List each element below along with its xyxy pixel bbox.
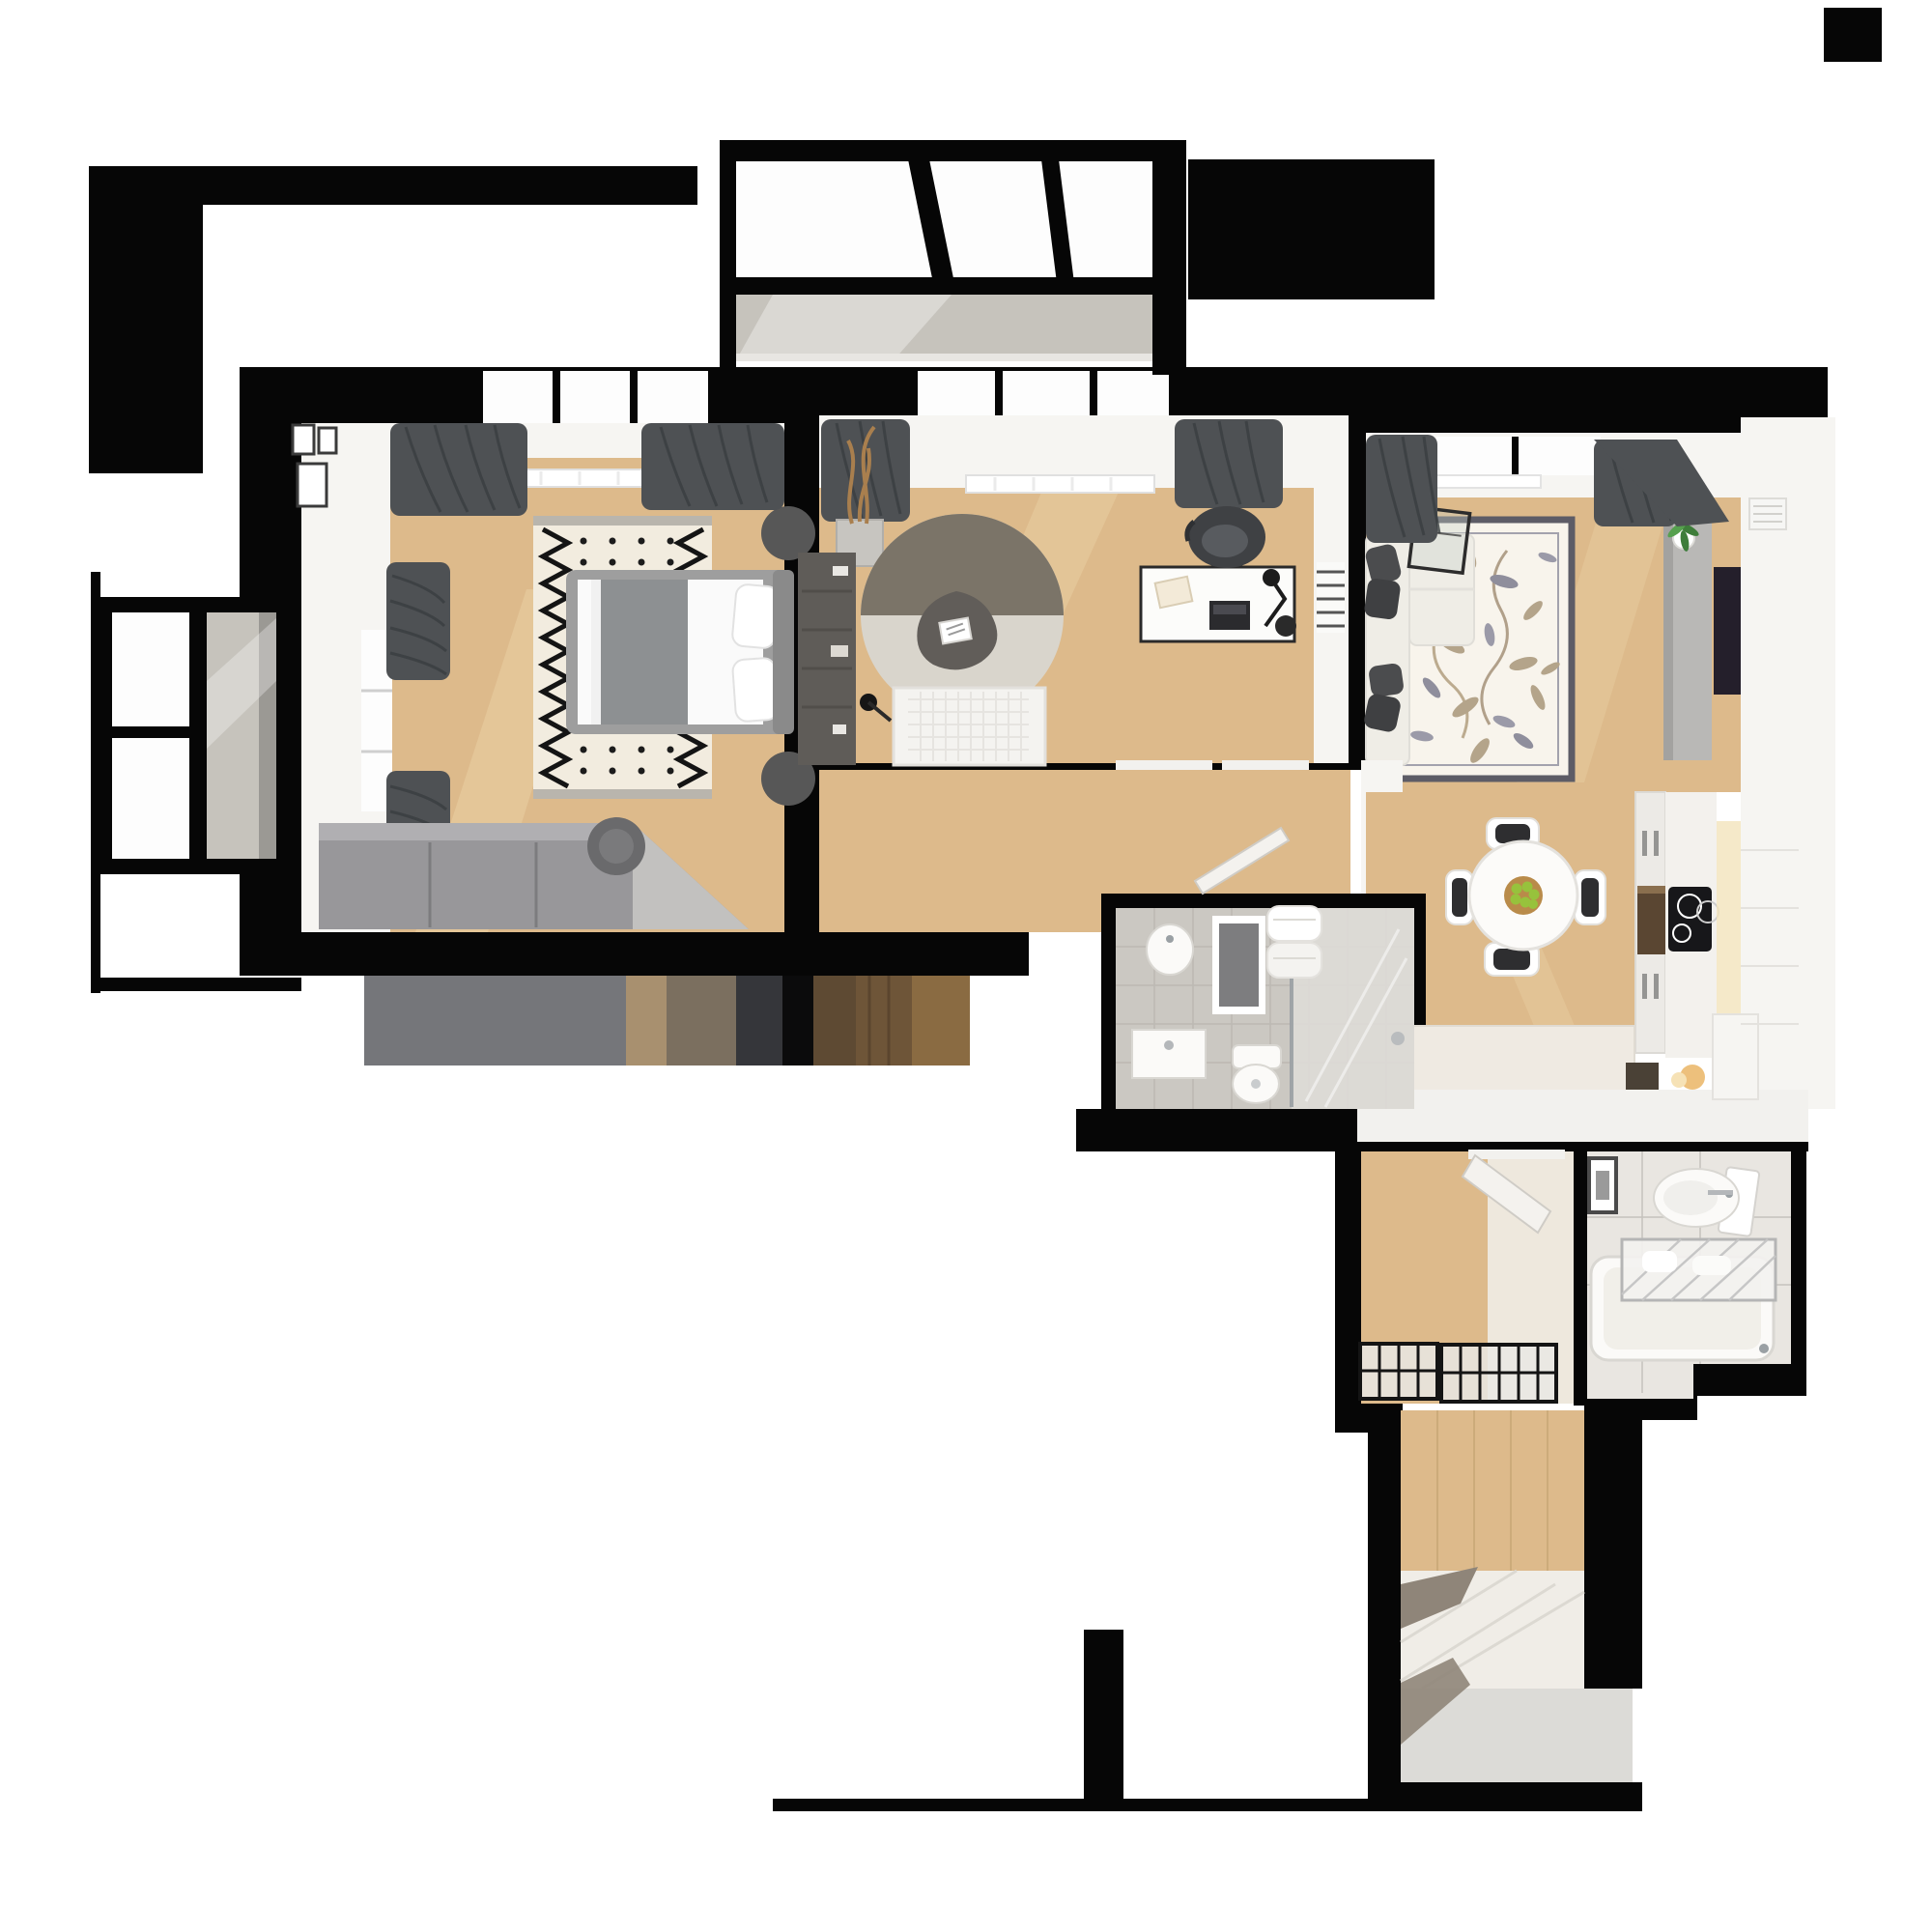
shoe-rack-1 — [1360, 1344, 1437, 1399]
living-wall-shelf — [1749, 498, 1786, 529]
balcony-left-mullion-h — [112, 726, 189, 738]
dining-chair-right — [1575, 870, 1605, 924]
notebook — [1155, 577, 1193, 609]
balcony-left — [97, 597, 290, 874]
study-window-top — [918, 371, 1169, 417]
kitchen-tall-cabinets — [1635, 792, 1665, 1053]
wall-bedroom-bottom — [240, 932, 1029, 976]
wall-bath2-bottom-right — [1693, 1364, 1806, 1396]
balcony-left-mullion-v — [189, 612, 207, 859]
entry-wood-panel — [1401, 1410, 1584, 1571]
wall-entry-bottom — [1368, 1782, 1642, 1811]
bath1-mat — [1212, 916, 1265, 1014]
exterior-block-top-right — [1188, 159, 1435, 299]
wall-lone-bar — [1084, 1630, 1123, 1811]
room-bedroom — [293, 423, 815, 932]
corridor-door-gap-1 — [1116, 760, 1212, 770]
room-bathroom-shower — [1116, 906, 1414, 1109]
balcony-top-frame-top — [720, 140, 1186, 161]
thin-wall-left-bottom — [91, 978, 301, 991]
balcony-left-frame-left — [97, 597, 112, 874]
bath1-wall-sink — [1147, 924, 1193, 975]
room-study — [798, 415, 1349, 765]
wall-entry-right — [1584, 1406, 1642, 1689]
desk-lamp-head — [1263, 569, 1280, 586]
laundry-item-1 — [1642, 1251, 1677, 1272]
study-wall-ladder-radiator — [1317, 562, 1345, 633]
bath2-drying-rack — [1622, 1239, 1776, 1300]
living-window-mullion — [1512, 437, 1519, 475]
bath1-toilet — [1233, 1045, 1281, 1103]
wall-hall-bottom-chunk — [1359, 1404, 1403, 1433]
wall-entry-left — [1368, 1433, 1401, 1811]
study-radiator — [966, 475, 1154, 493]
bed-pillow-2 — [732, 658, 779, 723]
sofa-pillow-3 — [1368, 663, 1405, 697]
laundry-item-2 — [1692, 1256, 1731, 1275]
wall-study-living — [1349, 367, 1366, 770]
bed-sheet-fold — [591, 580, 601, 724]
bedroom-window-top — [483, 371, 708, 423]
wall-bath1-left — [1101, 908, 1116, 1111]
shoe-rack-2 — [1441, 1345, 1556, 1402]
counter-dark-inset — [1626, 1063, 1659, 1090]
wall-thin-bottom-line — [773, 1799, 1368, 1811]
tv — [1714, 567, 1741, 695]
hallway-door-jamb — [1468, 1150, 1565, 1159]
balcony-left-frame-bottom — [97, 859, 290, 874]
induction-hob — [1668, 887, 1712, 952]
cut-section-stripes — [364, 976, 970, 1065]
exterior-block-top-left — [89, 166, 203, 473]
bed-blanket — [599, 580, 688, 724]
kitchen-bottom-counter — [1357, 1014, 1808, 1142]
room-hallway — [1360, 1150, 1574, 1404]
bed-headboard — [773, 570, 794, 734]
living-tv-sideboard — [1663, 519, 1712, 760]
bedroom-stool-top — [599, 829, 634, 864]
room-bathroom-tub — [1587, 1151, 1791, 1399]
balcony-left-frame-top — [97, 597, 290, 612]
bath1-vanity — [1132, 1030, 1206, 1078]
wall-hall-right — [1574, 1151, 1587, 1406]
study-daybed — [894, 688, 1045, 765]
wall-bath2-right — [1791, 1151, 1806, 1396]
floor-plan-render — [0, 0, 1932, 1932]
balcony-top-frame-right — [1152, 140, 1186, 375]
balcony-left-frame-right — [276, 597, 290, 874]
balcony-top-transom — [736, 277, 1152, 295]
balcony-top — [720, 140, 1186, 375]
balcony-top-frame-left — [720, 140, 736, 375]
corridor-door-gap-2 — [1222, 760, 1309, 770]
built-in-oven — [1637, 886, 1665, 954]
living-radiator — [1430, 475, 1541, 488]
shower-head — [1391, 1032, 1405, 1045]
sofa-pillow-2 — [1363, 578, 1401, 620]
nightstand-pouf-top — [761, 506, 815, 560]
balcony-top-threshold — [736, 354, 1152, 361]
magazine — [939, 618, 971, 644]
study-tall-cabinet — [798, 553, 856, 765]
exterior-chip-corner — [1824, 8, 1882, 62]
study-desk — [1141, 567, 1296, 641]
floor-plan-canvas — [0, 0, 1932, 1932]
wall-bath1-top — [1101, 894, 1426, 908]
bed-pillow-1 — [731, 583, 779, 649]
wall-hall-left — [1335, 1151, 1361, 1433]
desk-lamp-base — [1275, 615, 1296, 637]
bedroom-bed — [566, 570, 794, 734]
bath2-sink — [1654, 1169, 1739, 1227]
